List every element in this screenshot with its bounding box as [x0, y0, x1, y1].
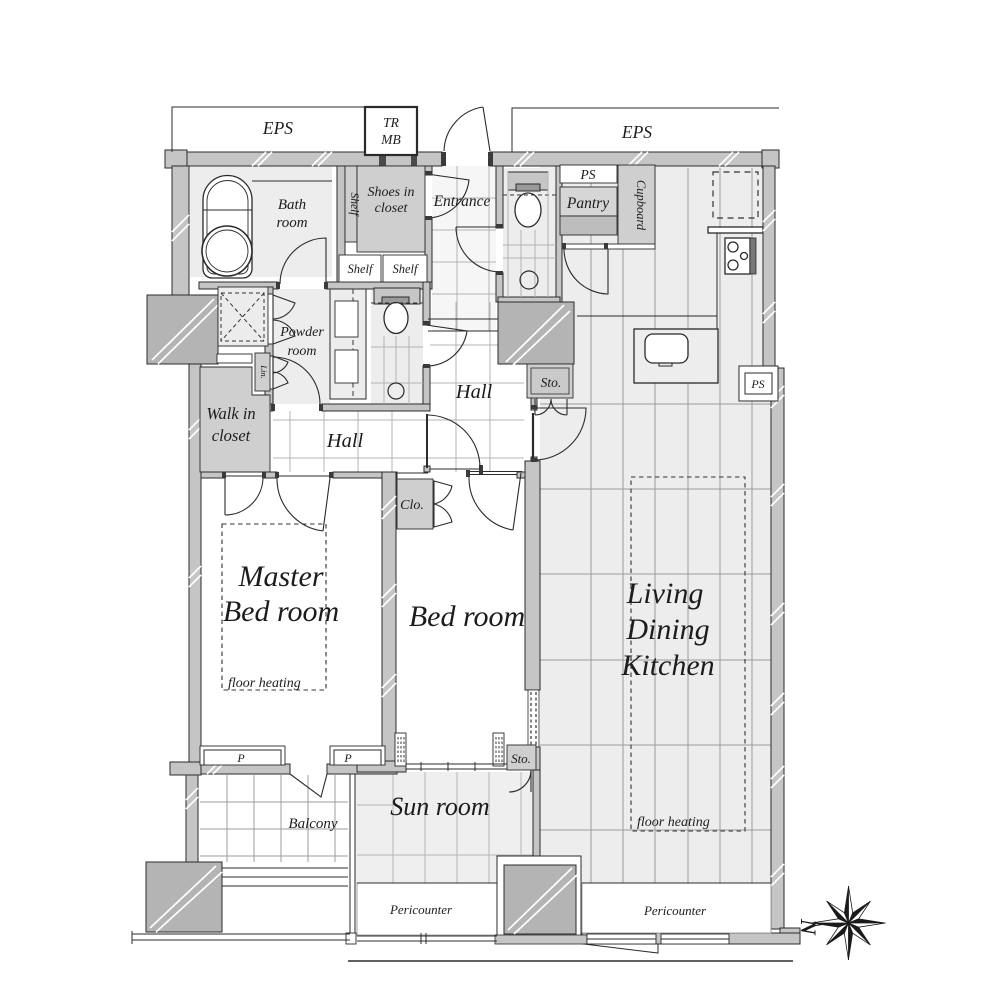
svg-text:Cupboard: Cupboard: [634, 180, 648, 231]
svg-text:P: P: [236, 751, 245, 765]
svg-text:room: room: [287, 344, 316, 359]
svg-text:closet: closet: [375, 201, 409, 216]
svg-text:Powder: Powder: [279, 325, 324, 340]
svg-text:PS: PS: [580, 167, 596, 182]
svg-text:Hall: Hall: [326, 430, 364, 452]
svg-text:Shelf: Shelf: [348, 193, 360, 218]
svg-text:Clo.: Clo.: [400, 498, 424, 513]
svg-text:Walk in: Walk in: [206, 404, 255, 423]
svg-text:Lin.: Lin.: [259, 364, 269, 378]
svg-text:Bed room: Bed room: [223, 595, 339, 628]
svg-text:Shelf: Shelf: [348, 262, 375, 276]
svg-text:Sto.: Sto.: [511, 751, 531, 766]
svg-text:Bed room: Bed room: [409, 600, 525, 633]
svg-text:MB: MB: [380, 132, 401, 147]
svg-text:floor heating: floor heating: [228, 676, 301, 691]
svg-text:P: P: [343, 751, 352, 765]
svg-text:Dining: Dining: [625, 613, 709, 646]
svg-text:Hall: Hall: [455, 381, 493, 403]
svg-text:Sto.: Sto.: [541, 375, 562, 390]
svg-text:floor heating: floor heating: [637, 815, 710, 830]
svg-text:TR: TR: [383, 115, 400, 130]
svg-text:Balcony: Balcony: [288, 816, 337, 832]
svg-text:Bath: Bath: [278, 197, 306, 213]
svg-text:closet: closet: [212, 426, 251, 445]
svg-text:Sun room: Sun room: [390, 792, 489, 821]
svg-text:PS: PS: [750, 377, 764, 391]
svg-text:Kitchen: Kitchen: [620, 649, 714, 682]
svg-text:Shelf: Shelf: [393, 262, 420, 276]
svg-text:EPS: EPS: [262, 118, 293, 138]
svg-text:room: room: [276, 215, 307, 231]
svg-text:Shoes in: Shoes in: [367, 185, 414, 200]
svg-text:Entrance: Entrance: [433, 193, 491, 210]
svg-text:EPS: EPS: [621, 122, 652, 142]
svg-text:Pericounter: Pericounter: [643, 903, 707, 918]
svg-text:Master: Master: [238, 560, 324, 593]
svg-text:Living: Living: [626, 577, 704, 610]
svg-text:N: N: [796, 918, 821, 936]
svg-text:Pantry: Pantry: [566, 195, 609, 212]
svg-text:Pericounter: Pericounter: [389, 902, 453, 917]
